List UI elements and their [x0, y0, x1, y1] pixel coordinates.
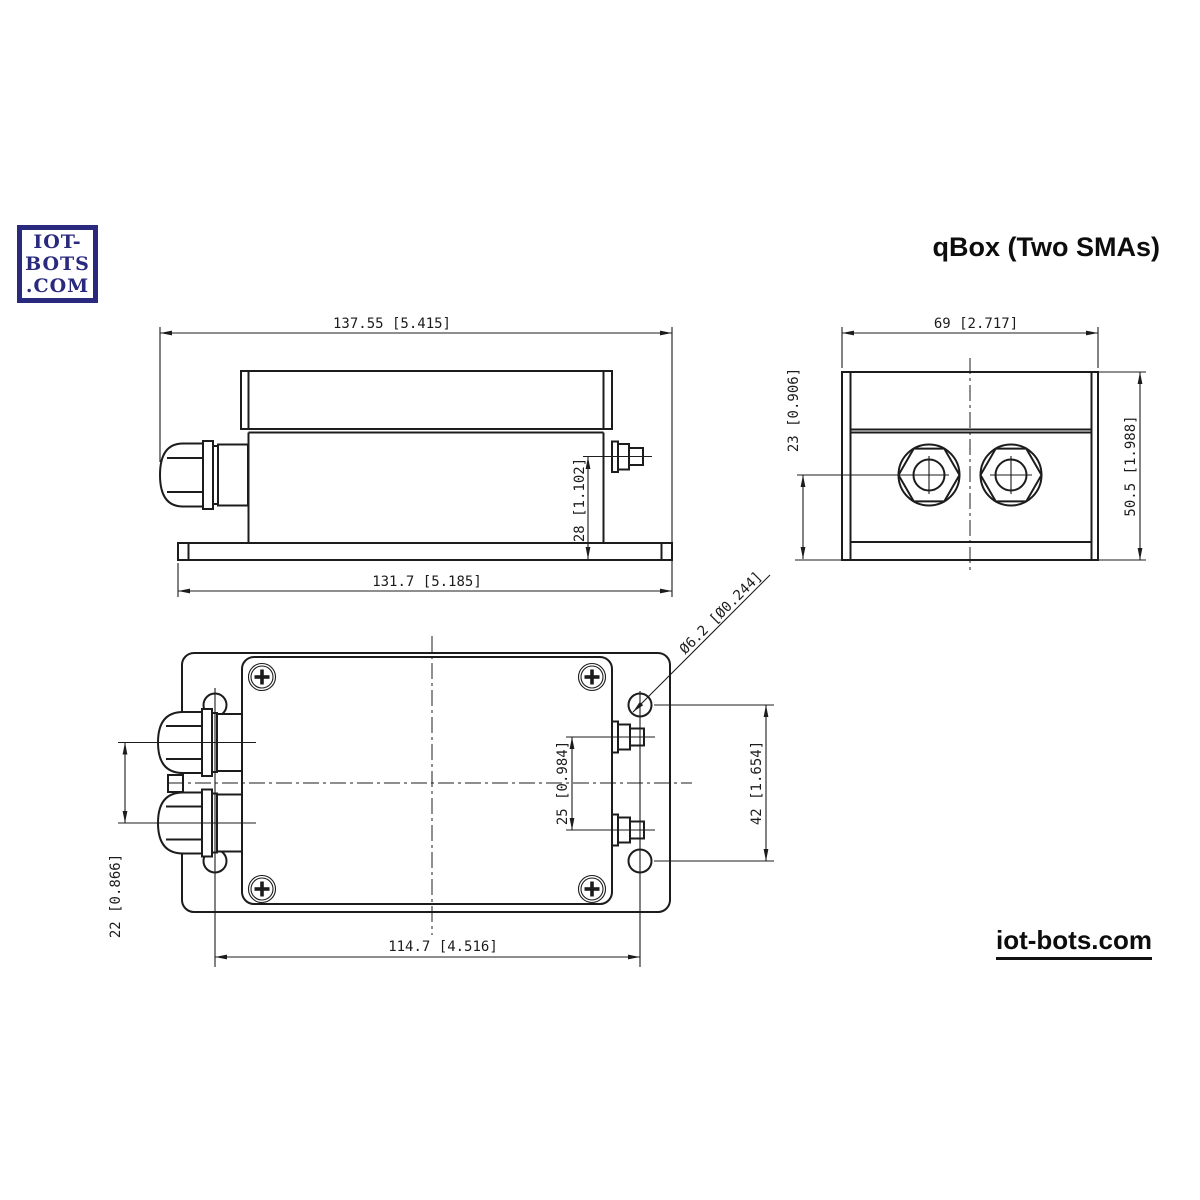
dim-text-overall-height: 50.5 [1.988] [1123, 415, 1139, 516]
dim-side-base-length: 131.7 [5.185] [178, 563, 672, 597]
dim-text-gland-spacing: 22 [0.866] [108, 854, 124, 938]
dim-text-hole-diameter: Ø6.2 [Ø0.244] [677, 569, 766, 658]
side-view: 137.55 [5.415] 131.7 [5.185] 28 [1.102] [160, 316, 672, 597]
side-sma-connector [583, 442, 652, 473]
plan-view: 22 [0.866] 25 [0.984] 42 [1.654] 114.7 [… [108, 569, 774, 967]
dim-text-base-length: 131.7 [5.185] [372, 574, 482, 590]
dim-text-gland-axis-height: 23 [0.906] [786, 368, 802, 452]
technical-drawing: 137.55 [5.415] 131.7 [5.185] 28 [1.102] [0, 0, 1200, 1200]
end-gland-nut-2 [981, 445, 1042, 506]
dim-plan-hole-spacing-width: 42 [1.654] [654, 705, 774, 861]
dim-text-sma-height: 28 [1.102] [572, 458, 588, 542]
side-base-plate [178, 543, 672, 560]
dim-plan-hole-spacing-length: 114.7 [4.516] [215, 939, 640, 957]
dim-text-sma-spacing: 25 [0.984] [555, 741, 571, 825]
side-lid [241, 371, 612, 429]
drawing-sheet: IOT- BOTS .COM qBox (Two SMAs) iot-bots.… [0, 0, 1200, 1200]
dim-text-overall-length: 137.55 [5.415] [333, 316, 451, 332]
dim-plan-sma-spacing: 25 [0.984] [555, 737, 572, 830]
side-cable-gland [160, 441, 248, 509]
dim-end-overall-height: 50.5 [1.988] [1098, 372, 1146, 560]
dim-text-hole-spacing-length: 114.7 [4.516] [388, 939, 498, 955]
dim-text-overall-width: 69 [2.717] [934, 316, 1018, 332]
dim-text-hole-spacing-width: 42 [1.654] [749, 741, 765, 825]
end-view: 69 [2.717] 23 [0.906] 50.5 [1.988] [786, 316, 1146, 573]
